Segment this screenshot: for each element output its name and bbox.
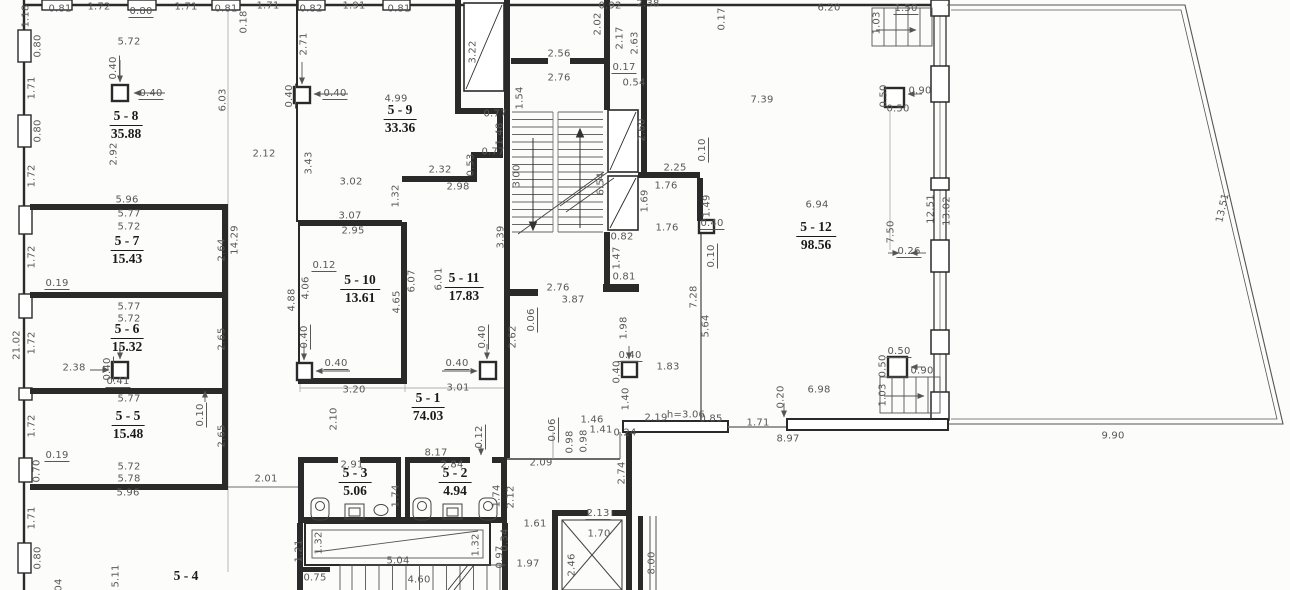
dimension-label: 0.92 <box>598 1 621 12</box>
dimension-label: 0.06 <box>526 307 538 332</box>
dimension-label: 6.20 <box>817 3 840 14</box>
dimension-label: 0.81 <box>612 272 635 283</box>
dimension-label: 1.32 <box>471 533 482 556</box>
dimension-label: 1.40 <box>621 387 632 410</box>
dimension-label: 0.54 <box>622 78 645 89</box>
room-area: 15.48 <box>112 426 145 442</box>
dimension-label: 1.72 <box>87 2 110 13</box>
dimension-label: 0.50 <box>886 104 909 115</box>
dimension-label: 0.50 <box>878 354 889 377</box>
dimension-label: 2.65 <box>217 327 228 350</box>
dimension-label: 2.74 <box>617 461 628 484</box>
dimension-label: 0.19 <box>44 450 69 462</box>
dimension-label: 12.51 <box>926 194 937 224</box>
dimension-label: 1.18 <box>21 4 32 27</box>
dimension-label: 5.72 <box>117 37 140 48</box>
dimension-label: 1.71 <box>174 2 197 13</box>
dimension-label: 2.98 <box>446 182 469 193</box>
room-number: 5 - 1 <box>412 391 445 408</box>
dimension-label: 1.74 <box>492 484 503 507</box>
dimension-label: 2.46 <box>567 553 578 576</box>
dimension-label: 14.29 <box>230 225 241 255</box>
dimension-label: 0.53 <box>466 153 477 176</box>
dimension-label: 1.69 <box>640 189 651 212</box>
dimension-label: 3.43 <box>304 151 315 174</box>
dimension-label: 1.76 <box>654 181 677 192</box>
dimension-label: 1.70 <box>587 529 610 540</box>
dimension-label: 2.38 <box>62 363 85 374</box>
floor-plan-canvas: 1.180.811.720.801.710.810.181.710.821.91… <box>0 0 1290 590</box>
room-label: 5 - 174.03 <box>412 391 445 424</box>
room-area: 4.94 <box>439 483 472 499</box>
dimension-label: 8.97 <box>776 434 799 445</box>
dimension-label: 3.22 <box>468 40 479 63</box>
dimension-label: 2.62 <box>508 325 519 348</box>
dimension-label: 0.81 <box>48 4 71 15</box>
dimension-label: 3.87 <box>561 295 584 306</box>
dimension-label: 0.80 <box>128 6 153 18</box>
dimension-label: 1.21 <box>294 539 305 562</box>
dimension-label: 7.50 <box>886 220 897 243</box>
dimension-label: 0.50 <box>886 346 911 358</box>
dimension-label: 0.41 <box>105 376 130 388</box>
dimension-label: 5.77 <box>117 209 140 220</box>
dimension-label: 0.17 <box>717 7 728 30</box>
dimension-label: 0.98 <box>565 430 576 453</box>
dimension-label: 1.47 <box>612 246 623 269</box>
dimension-label: 2.13 <box>585 508 610 520</box>
room-label: 5 - 615.32 <box>111 322 144 355</box>
dimension-label: 0.81 <box>387 4 410 15</box>
dimension-label: 0.82 <box>299 4 322 15</box>
dimension-label: 2.19 <box>644 413 667 424</box>
dimension-label: 8.00 <box>647 551 658 574</box>
room-area: 17.83 <box>445 288 484 304</box>
dimension-label: 6.54 <box>596 172 607 195</box>
room-label: 5 - 24.94 <box>439 466 472 499</box>
dimension-label: 1.72 <box>27 164 38 187</box>
dimension-label: 0.97 <box>495 545 506 568</box>
dimension-label: 0.77 <box>481 147 504 158</box>
dimension-label: 0.40 <box>284 83 296 108</box>
dimension-label: 1.71 <box>746 418 769 429</box>
dimension-label: 6.01 <box>434 267 445 290</box>
room-label: 5 - 1117.83 <box>445 271 484 304</box>
dimension-label: 0.40 <box>322 88 347 100</box>
dimension-label: 4.60 <box>407 575 430 586</box>
dimension-label: 2.92 <box>109 142 120 165</box>
dimension-label: 3.20 <box>342 385 365 396</box>
dimension-label: 0.40 <box>477 324 489 349</box>
room-area: 5.06 <box>339 483 372 499</box>
dimension-label: 0.80 <box>33 546 44 569</box>
room-number: 5 - 9 <box>384 103 417 120</box>
dimension-label: 5.72 <box>117 222 140 233</box>
dimension-label: 7.28 <box>689 285 700 308</box>
dimension-label: 1.03 <box>878 383 889 406</box>
room-area: 33.36 <box>384 120 417 136</box>
dimension-label: 1.32 <box>314 531 325 554</box>
dimension-label: 0.98 <box>579 429 590 452</box>
dimension-label: 7.39 <box>750 95 773 106</box>
dimension-label: 4.65 <box>392 290 403 313</box>
dimension-label: 1.72 <box>27 245 38 268</box>
dimension-label: 2.60 <box>637 118 648 141</box>
dimension-label: 1.41 <box>589 425 612 436</box>
dimension-label: 0.77 <box>483 109 506 120</box>
room-label: 5 - 835.88 <box>110 109 143 142</box>
room-number: 5 - 8 <box>110 109 143 126</box>
room-number: 5 - 2 <box>439 466 472 483</box>
room-label: 5 - 715.43 <box>111 234 144 267</box>
dimension-label: 2.64 <box>217 238 228 261</box>
dimension-label: 0.82 <box>610 232 633 243</box>
dimension-label: 1.91 <box>342 1 365 12</box>
dimension-label: 1.71 <box>27 506 38 529</box>
dimension-label: 0.18 <box>239 10 250 33</box>
room-label: 5 - 1298.56 <box>796 220 836 253</box>
dimension-label: 5.96 <box>116 488 139 499</box>
dimension-label: 1.61 <box>523 519 546 530</box>
dimension-label: 3.07 <box>338 211 361 222</box>
dimension-label: 0.20 <box>776 385 787 408</box>
room-number: 5 - 3 <box>339 466 372 483</box>
dimension-label: 4.06 <box>301 276 312 299</box>
dimension-label: 0.26 <box>896 246 921 258</box>
dimension-label: 0.17 <box>611 62 636 74</box>
dimension-label: 13.02 <box>942 196 953 226</box>
room-label: 5 - 1013.61 <box>340 273 380 306</box>
dimension-label: 2.12 <box>252 149 275 160</box>
room-number: 5 - 5 <box>112 409 145 426</box>
dimension-label: 0.80 <box>33 34 44 57</box>
dimension-label: 21.02 <box>12 330 23 360</box>
dimension-label: 5.64 <box>701 314 712 337</box>
dimension-label: 0.12 <box>474 424 486 449</box>
dimension-label: 0.12 <box>311 260 336 272</box>
dimension-label: 04 <box>54 578 65 590</box>
dimension-label: 0.40 <box>323 358 348 370</box>
dimension-label: 1.72 <box>27 414 38 437</box>
dimension-label: 5.77 <box>117 394 140 405</box>
room-number: 5 - 7 <box>111 234 144 251</box>
dimension-label: 3.39 <box>496 225 507 248</box>
dimension-label: 2.71 <box>299 32 310 55</box>
dimension-label: 1.98 <box>619 316 630 339</box>
dimension-label: 1.71 <box>256 1 279 12</box>
dimension-label: 2.38 <box>636 0 659 10</box>
dimension-label: 0.85 <box>699 414 722 425</box>
dimension-label: 2.95 <box>341 226 364 237</box>
dimension-label: 1.48 <box>495 122 506 145</box>
room-area: 15.32 <box>111 339 144 355</box>
dimension-label: 3.02 <box>339 177 362 188</box>
dimension-label: 0.10 <box>706 243 718 268</box>
room-area: 13.61 <box>340 290 380 306</box>
room-area: 74.03 <box>412 408 445 424</box>
room-number: 5 - 11 <box>445 271 484 288</box>
dimension-label: 2.17 <box>615 26 626 49</box>
dimension-label: 0.70 <box>32 459 43 482</box>
room-number: 5 - 10 <box>340 273 380 290</box>
dimension-label: 5.04 <box>386 556 409 567</box>
dimension-label: 2.56 <box>547 49 570 60</box>
room-label: 5 - 515.48 <box>112 409 145 442</box>
dimension-label: 2.12 <box>506 485 517 508</box>
room-area: 15.43 <box>111 251 144 267</box>
room-area: 35.88 <box>110 126 143 142</box>
dimension-label: 2.76 <box>547 73 570 84</box>
dimension-label: 5.77 <box>117 302 140 313</box>
dimension-label: 0.75 <box>303 573 326 584</box>
dimension-label: 1.72 <box>27 331 38 354</box>
dimension-label: 2.65 <box>217 424 228 447</box>
dimension-label: 1.71 <box>27 76 38 99</box>
dimension-label: 2.25 <box>663 163 686 174</box>
dimension-label: 5.72 <box>117 462 140 473</box>
dimension-label: 0.40 <box>138 88 163 100</box>
dimension-label: 6.07 <box>407 269 418 292</box>
dimension-label: 4.88 <box>287 288 298 311</box>
dimension-label: 2.02 <box>593 12 604 35</box>
dimension-label: 0.90 <box>908 86 931 97</box>
dimension-label: 2.01 <box>254 474 277 485</box>
dimension-label: 0.40 <box>699 218 724 230</box>
dimension-label: 2.10 <box>329 407 340 430</box>
dimension-label: 3.00 <box>512 164 523 187</box>
dimension-label: 0.81 <box>214 4 237 15</box>
dimension-label: 0.40 <box>612 360 623 383</box>
room-label: 5 - 933.36 <box>384 103 417 136</box>
dimension-label: 5.96 <box>115 195 138 206</box>
room-number: 5 - 12 <box>796 220 836 237</box>
dimension-label: 0.40 <box>299 324 311 349</box>
dimension-label: 3.01 <box>446 383 469 394</box>
dimension-label: 13.51 <box>1214 192 1231 223</box>
dimension-label: 1.50 <box>893 3 918 15</box>
dimension-label: 1.32 <box>391 184 402 207</box>
dimension-label: 6.03 <box>218 88 229 111</box>
dimension-label: 2.32 <box>428 165 451 176</box>
dimension-label: 0.40 <box>108 55 120 80</box>
dimension-label: 0.90 <box>910 366 933 377</box>
dimension-label: 9.90 <box>1101 431 1124 442</box>
dimension-label: 0.10 <box>195 402 207 427</box>
dimension-label: 2.63 <box>630 31 641 54</box>
dimension-label: 2.76 <box>546 283 569 294</box>
dimension-label: 1.97 <box>516 559 539 570</box>
labels-layer: 1.180.811.720.801.710.810.181.710.821.91… <box>0 0 1290 590</box>
dimension-label: 8.17 <box>424 448 447 459</box>
dimension-label: 0.40 <box>444 358 469 370</box>
dimension-label: 6.94 <box>805 200 828 211</box>
dimension-label: 1.83 <box>656 362 679 373</box>
dimension-label: 0.80 <box>33 119 44 142</box>
dimension-label: 5.11 <box>111 564 122 587</box>
dimension-label: 1.03 <box>872 11 883 34</box>
dimension-label: 1.49 <box>702 194 713 217</box>
dimension-label: 1.76 <box>655 223 678 234</box>
dimension-label: 1.74 <box>391 484 402 507</box>
dimension-label: 6.98 <box>807 385 830 396</box>
dimension-label: 0.06 <box>547 417 559 442</box>
room-label: 5 - 35.06 <box>339 466 372 499</box>
dimension-label: 5.78 <box>117 474 140 485</box>
dimension-label: 2.09 <box>529 458 552 469</box>
room-number: 5 - 4 <box>170 569 203 585</box>
room-label: 5 - 4 <box>170 569 203 585</box>
room-area: 98.56 <box>796 237 836 253</box>
dimension-label: 1.54 <box>515 86 526 109</box>
dimension-label: 0.19 <box>44 278 69 290</box>
dimension-label: 0.10 <box>697 137 709 162</box>
room-number: 5 - 6 <box>111 322 144 339</box>
dimension-label: 0.24 <box>613 428 636 439</box>
